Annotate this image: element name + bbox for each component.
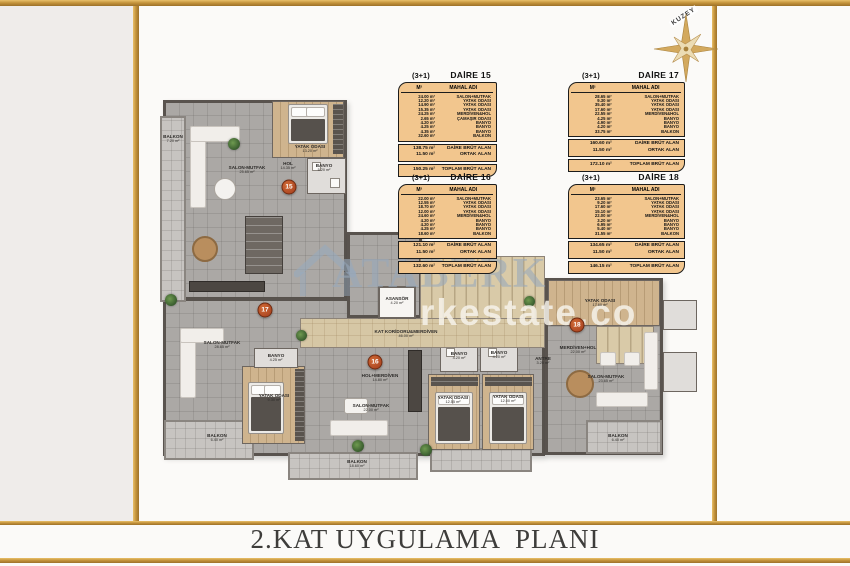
armchair-icon bbox=[600, 352, 616, 366]
table-row: 31.55 m²BALKON bbox=[571, 232, 681, 236]
table-row: 33.75 m²BALKON bbox=[571, 130, 681, 134]
table-row: 146.15 m²TOPLAM BRÜT ALAN bbox=[571, 263, 681, 271]
room-label: SALON-MUTFAK23.65 m² bbox=[588, 374, 625, 384]
room-label: YATAK ODASI12.00 m² bbox=[493, 394, 524, 404]
room-label: HOL14.35 m² bbox=[281, 161, 296, 171]
floor-plan-sheet: 15 17 16 18 BALKON7.20 m² SALON-MUTFAK25… bbox=[0, 0, 850, 566]
room-label: BANYO5.20 m² bbox=[316, 163, 333, 173]
armchair-icon bbox=[624, 352, 640, 366]
table-row: 11.50 m²ORTAK ALAN bbox=[571, 250, 681, 257]
apt-table-18: (3+1)DAİRE 18 M²MAHAL ADI23.65 m²SALON+M… bbox=[568, 172, 685, 274]
room-label: BALKON7.20 m² bbox=[163, 134, 183, 144]
stairs-unit15 bbox=[245, 216, 283, 274]
frame-left-line bbox=[133, 6, 139, 521]
room-label: ASANSÖR4.20 m² bbox=[386, 296, 409, 306]
apartment-number-badge-17: 17 bbox=[258, 303, 273, 318]
col-header-name: MAHAL ADI bbox=[436, 85, 491, 91]
apt-name: DAİRE 18 bbox=[638, 172, 679, 182]
wardrobe-icon bbox=[295, 369, 304, 441]
room-annex-right-top bbox=[663, 300, 697, 330]
room-label: BALKON18.60 m² bbox=[347, 459, 367, 469]
table-row: 172.10 m²TOPLAM BRÜT ALAN bbox=[571, 161, 681, 169]
table-row: 11.50 m²ORTAK ALAN bbox=[401, 250, 493, 257]
apt-type: (3+1) bbox=[582, 71, 600, 80]
col-header-name: MAHAL ADI bbox=[612, 187, 679, 193]
kitchen-counter-icon bbox=[408, 350, 422, 412]
room-label: SALON-MUTFAK25.65 m² bbox=[229, 165, 266, 175]
area-cell: 32.60 m² bbox=[401, 134, 435, 138]
apt-type: (3+1) bbox=[582, 173, 600, 182]
apt-name: DAİRE 15 bbox=[450, 70, 491, 80]
apt-type: (3+1) bbox=[412, 71, 430, 80]
plan-title: 2.KAT UYGULAMA PLANI bbox=[0, 524, 850, 555]
room-label: YATAK ODASI13.20 m² bbox=[295, 144, 326, 154]
apt-table-17: (3+1)DAİRE 17 M²MAHAL ADI28.65 m²SALON+M… bbox=[568, 70, 685, 172]
frame-top-line bbox=[0, 0, 850, 6]
left-margin bbox=[0, 0, 133, 521]
apartment-number-badge-15: 15 bbox=[282, 180, 297, 195]
room-label: SALON-MUTFAK22.00 m² bbox=[353, 403, 390, 413]
plant-icon bbox=[165, 294, 177, 306]
plant-icon bbox=[228, 138, 240, 150]
plant-icon bbox=[352, 440, 364, 452]
kitchen-counter-icon bbox=[189, 281, 265, 292]
area-cell: 33.75 m² bbox=[571, 130, 612, 134]
room-cell: BALKON bbox=[435, 232, 493, 236]
table-row: 132.60 m²TOPLAM BRÜT ALAN bbox=[401, 263, 493, 271]
room-label: YATAK ODASI17.60 m² bbox=[585, 298, 616, 308]
area-cell: 18.60 m² bbox=[401, 232, 435, 236]
room-label: BANYO4.20 m² bbox=[451, 351, 468, 361]
room-label: ANTRE3.20 m² bbox=[535, 356, 551, 366]
table-row: 11.50 m²ORTAK ALAN bbox=[571, 148, 681, 155]
room-label: YATAK ODASI9.30 m² bbox=[259, 393, 290, 403]
room-cell: BALKON bbox=[612, 130, 681, 134]
room-label: BANYO4.20 m² bbox=[491, 350, 508, 360]
room-annex-right-bottom bbox=[663, 352, 697, 392]
table-row: 32.60 m²BALKON bbox=[401, 134, 493, 138]
dining-table-icon bbox=[192, 236, 218, 262]
room-label: BALKON6.40 m² bbox=[207, 433, 227, 443]
room-label: BANYO4.25 m² bbox=[268, 353, 285, 363]
col-header-area: M² bbox=[403, 187, 436, 193]
apartment-number-badge-16: 16 bbox=[368, 355, 383, 370]
col-header-name: MAHAL ADI bbox=[612, 85, 679, 91]
plant-icon bbox=[296, 330, 307, 341]
apt-table-16: (3+1)DAİRE 16 M²MAHAL ADI22.00 m²SALON+M… bbox=[398, 172, 497, 274]
apt-name: DAİRE 16 bbox=[450, 172, 491, 182]
table-row: 18.60 m²BALKON bbox=[401, 232, 493, 236]
room-label: KAT KORİDORU&MERDİVEN46.00 m² bbox=[375, 329, 438, 339]
wardrobe-icon bbox=[333, 104, 343, 154]
room-label: BALKON6.40 m² bbox=[608, 433, 628, 443]
apt-table-15: (3+1)DAİRE 15 M²MAHAL ADI24.00 m²SALON+M… bbox=[398, 70, 497, 177]
frame-bottom-line-lower bbox=[0, 558, 850, 563]
apartment-number-badge-18: 18 bbox=[570, 318, 585, 333]
apt-name: DAİRE 17 bbox=[638, 70, 679, 80]
room-label: SALON-MUTFAK28.65 m² bbox=[204, 340, 241, 350]
coffee-table-icon bbox=[214, 178, 236, 200]
room-cell: BALKON bbox=[612, 232, 681, 236]
room-balcony-16b bbox=[430, 448, 532, 472]
room-label: MERDİVEN+HOL22.00 m² bbox=[560, 345, 597, 355]
col-header-area: M² bbox=[403, 85, 436, 91]
room-balcony-15 bbox=[160, 116, 186, 302]
room-label: HOL+MERDİVEN14.80 m² bbox=[362, 373, 399, 383]
sofa-icon bbox=[596, 392, 648, 407]
table-row: 11.50 m²ORTAK ALAN bbox=[401, 152, 493, 159]
col-header-area: M² bbox=[573, 187, 612, 193]
apt-type: (3+1) bbox=[412, 173, 430, 182]
wardrobe-icon bbox=[485, 377, 532, 386]
room-label: YATAK ODASI12.55 m² bbox=[438, 395, 469, 405]
col-header-area: M² bbox=[573, 85, 612, 91]
bath-fixture-icon bbox=[330, 178, 340, 188]
room-cell: BALKON bbox=[435, 134, 493, 138]
area-cell: 31.55 m² bbox=[571, 232, 612, 236]
sofa-icon bbox=[644, 332, 658, 390]
wardrobe-icon bbox=[431, 377, 478, 386]
col-header-name: MAHAL ADI bbox=[436, 187, 491, 193]
plant-icon bbox=[420, 444, 432, 456]
bed-icon bbox=[248, 382, 284, 434]
sofa-icon bbox=[330, 420, 388, 436]
bed-icon bbox=[288, 104, 328, 144]
